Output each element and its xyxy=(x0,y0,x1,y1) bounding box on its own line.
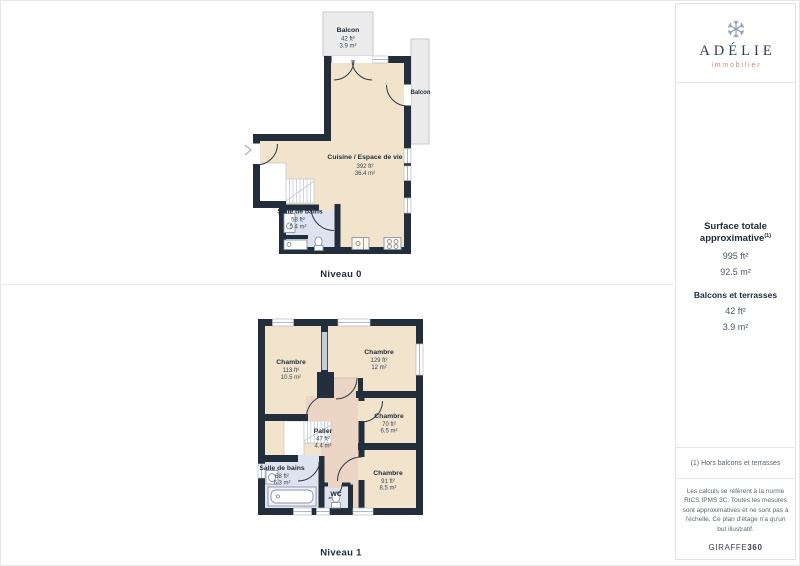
bedroom-tr-ft: 129 ft² xyxy=(370,358,387,364)
bedroom-tr-m: 12 m² xyxy=(371,365,386,371)
bathroom1-ft: 68 ft² xyxy=(275,474,289,480)
niveau1-void xyxy=(284,421,304,456)
surface-total-title-text: Surface totale approximative xyxy=(700,221,767,244)
living-room-label: Cuisine / Espace de vie xyxy=(327,154,402,161)
bathroom1-m: 6.3 m² xyxy=(273,481,290,487)
giraffe360-watermark: GIRAFFE360 xyxy=(682,542,789,554)
bedroom-tl-ft: 113 ft² xyxy=(283,368,300,374)
bedroom-br-ft: 91 ft² xyxy=(381,479,395,485)
niveau0-title: Niveau 0 xyxy=(320,269,361,280)
living-room-ft: 392 ft² xyxy=(356,164,373,170)
surface-summary: Surface totale approximative(1) 995 ft² … xyxy=(676,83,795,447)
balcony-top-label: Balcon xyxy=(337,27,360,34)
footnote: (1) Hors balcons et terrasses xyxy=(676,447,795,478)
brand-name: ADÉLIE xyxy=(695,43,775,60)
niveau0-plan: Balcon 42 ft² 3.9 m² Balcon Cuisine / Es… xyxy=(245,12,431,280)
surface-total-ft: 995 ft² xyxy=(676,251,795,261)
bedroom-mr-m: 6.5 m² xyxy=(380,429,397,435)
bedroom-mr-label: Chambre xyxy=(374,413,404,420)
niveau1-plan: Chambre 113 ft² 10.5 m² Chambre 129 ft² … xyxy=(258,319,423,559)
surface-total-title: Surface totale approximative(1) xyxy=(676,221,795,245)
niveau1-title: Niveau 1 xyxy=(320,548,362,559)
disclaimer-section: Les calculs se réfèrent à la norme RICS … xyxy=(676,478,795,559)
bedroom-tl-m: 10.5 m² xyxy=(281,375,301,381)
balconies-m: 3.9 m² xyxy=(676,322,795,332)
balconies-ft: 42 ft² xyxy=(676,306,795,316)
niveau0-stairs xyxy=(286,179,314,203)
balcony-top-ft: 42 ft² xyxy=(341,37,355,43)
giraffe360-text: GIRAFFE xyxy=(708,543,747,552)
bathroom0-label: Salle de bains xyxy=(277,209,323,216)
balcony-right-label: Balcon xyxy=(410,90,430,96)
wall-pocket xyxy=(322,332,327,370)
palier-m: 4.4 m² xyxy=(314,444,331,450)
bedroom-tr-label: Chambre xyxy=(364,349,394,356)
footnote-text: (1) Hors balcons et terrasses xyxy=(691,460,781,467)
info-sidebar: ADÉLIE immobilier Surface totale approxi… xyxy=(675,3,796,560)
giraffe360-number: 360 xyxy=(747,543,762,552)
bedroom-br-label: Chambre xyxy=(373,470,403,477)
bathroom0-m: 5.4 m² xyxy=(289,225,306,231)
niveau0-void xyxy=(258,163,286,203)
entry-arrow-icon xyxy=(245,145,251,155)
brand-tagline: immobilier xyxy=(710,62,762,69)
floorplans-canvas: Balcon 42 ft² 3.9 m² Balcon Cuisine / Es… xyxy=(1,1,673,566)
bedroom-tl-label: Chambre xyxy=(276,359,306,366)
bedroom-br-m: 8.5 m² xyxy=(379,486,396,492)
wc-label: WC xyxy=(330,491,341,498)
balconies-title: Balcons et terrasses xyxy=(676,290,795,300)
floorplan-page: Balcon 42 ft² 3.9 m² Balcon Cuisine / Es… xyxy=(0,0,800,566)
snowflake-icon xyxy=(725,18,747,40)
bathroom1-label: Salle de bains xyxy=(259,465,305,472)
palier-ft: 47 ft² xyxy=(316,437,330,443)
bathroom0-ft: 58 ft² xyxy=(291,218,305,224)
palier-label: Palier xyxy=(314,428,333,435)
chimney-block xyxy=(317,372,334,398)
brand-logo: ADÉLIE immobilier xyxy=(676,4,795,83)
balcony-top-m: 3.9 m² xyxy=(339,44,356,50)
living-room-m: 36.4 m² xyxy=(355,171,375,177)
disclaimer-text: Les calculs se réfèrent à la norme RICS … xyxy=(682,487,789,534)
surface-total-footnote-marker: (1) xyxy=(764,233,771,239)
bedroom-mr-ft: 70 ft² xyxy=(382,422,396,428)
surface-total-m: 92.5 m² xyxy=(676,267,795,277)
